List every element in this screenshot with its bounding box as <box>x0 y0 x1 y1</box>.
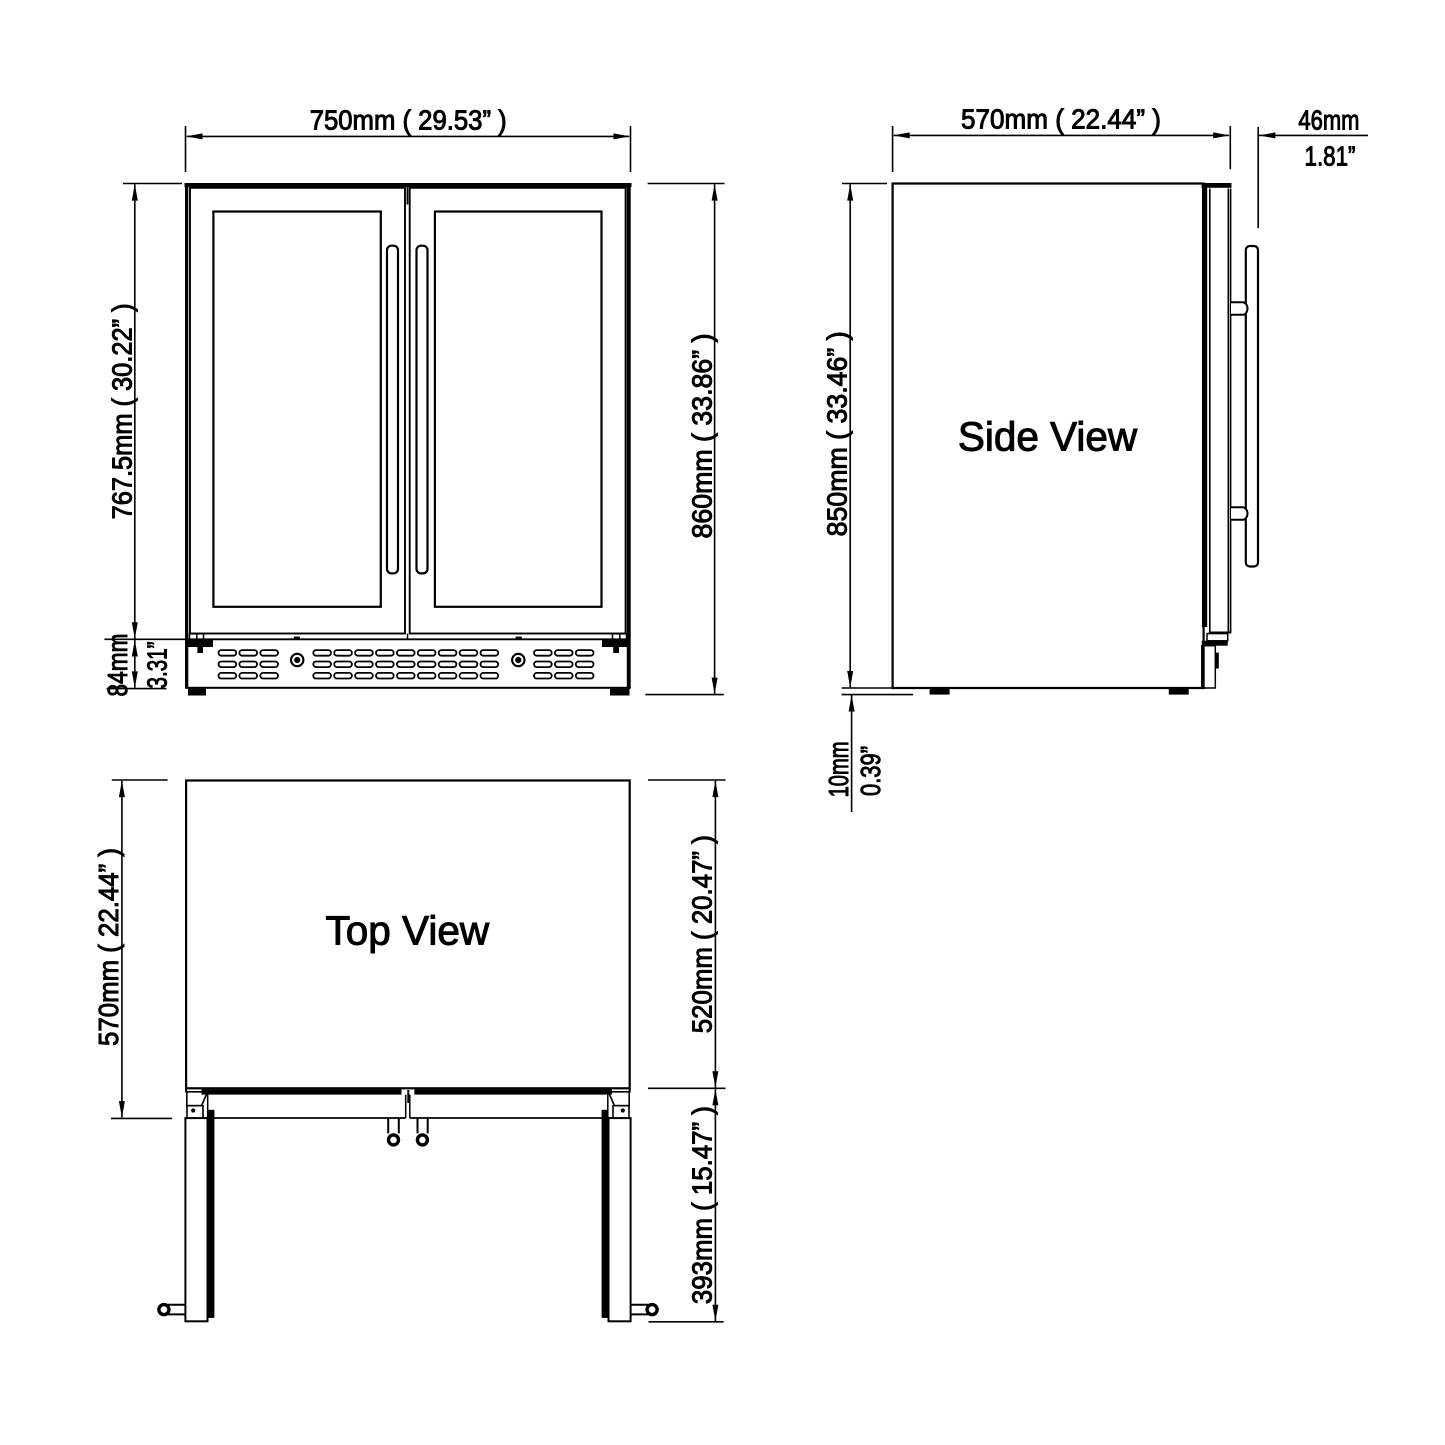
svg-text:520mm ( 20.47” ): 520mm ( 20.47” ) <box>687 835 718 1033</box>
svg-text:Top View: Top View <box>325 908 489 954</box>
svg-text:767.5mm ( 30.22” ): 767.5mm ( 30.22” ) <box>106 303 137 519</box>
svg-text:0.39”: 0.39” <box>855 746 886 796</box>
svg-text:46mm: 46mm <box>1298 105 1359 136</box>
svg-text:10mm: 10mm <box>823 741 854 797</box>
svg-text:570mm ( 22.44” ): 570mm ( 22.44” ) <box>961 103 1161 134</box>
svg-text:570mm ( 22.44” ): 570mm ( 22.44” ) <box>93 848 124 1046</box>
svg-text:750mm ( 29.53” ): 750mm ( 29.53” ) <box>310 104 507 135</box>
svg-text:850mm ( 33.46” ): 850mm ( 33.46” ) <box>822 331 853 536</box>
svg-text:860mm ( 33.86” ): 860mm ( 33.86” ) <box>686 334 717 539</box>
svg-text:Side View: Side View <box>958 414 1138 460</box>
svg-text:1.81”: 1.81” <box>1305 141 1356 172</box>
svg-text:84mm: 84mm <box>102 634 133 697</box>
svg-text:393mm ( 15.47” ): 393mm ( 15.47” ) <box>687 1106 718 1304</box>
svg-text:3.31”: 3.31” <box>141 642 172 689</box>
